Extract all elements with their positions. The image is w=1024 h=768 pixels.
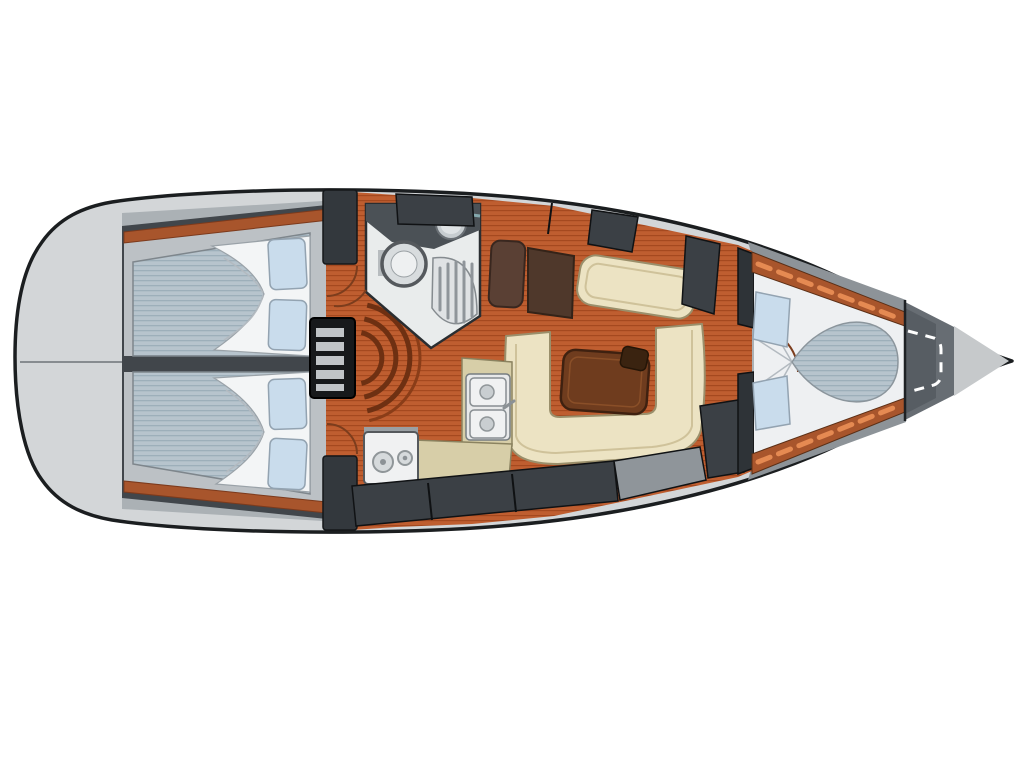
nav-seat-block [528,248,574,318]
boat-floor-plan [0,0,1024,768]
pillow-group [268,438,308,490]
pillow [268,438,308,490]
step-tread [316,384,344,391]
pillow-group [268,238,308,290]
burner-center [403,456,408,461]
deck-locker-top [396,194,474,226]
hanging-locker-top [488,240,525,308]
table-knob-group [619,346,649,372]
step-tread [316,342,344,351]
deck-locker-top [682,236,720,314]
step-tread [316,370,344,379]
floor-plan-image [0,0,1024,768]
step-tread [316,328,344,337]
burner-center [380,459,386,465]
pillow [268,299,307,350]
companionway-wall-top [323,190,357,264]
pillow-group [268,378,307,429]
anchor-locker-inner [905,308,936,414]
pillow [268,378,307,429]
sink-drain [480,417,494,431]
hanging-locker [488,240,525,308]
toilet-bowl [391,251,417,277]
deck-locker-top [588,210,638,252]
pillow [268,238,308,290]
pillow-group [268,299,307,350]
step-tread [316,356,344,365]
vberth-pillow [753,292,790,347]
vberth-pillow [753,376,790,430]
table-accessory [619,346,649,372]
sink-drain [480,385,494,399]
companionway-wall-bottom [323,456,357,530]
